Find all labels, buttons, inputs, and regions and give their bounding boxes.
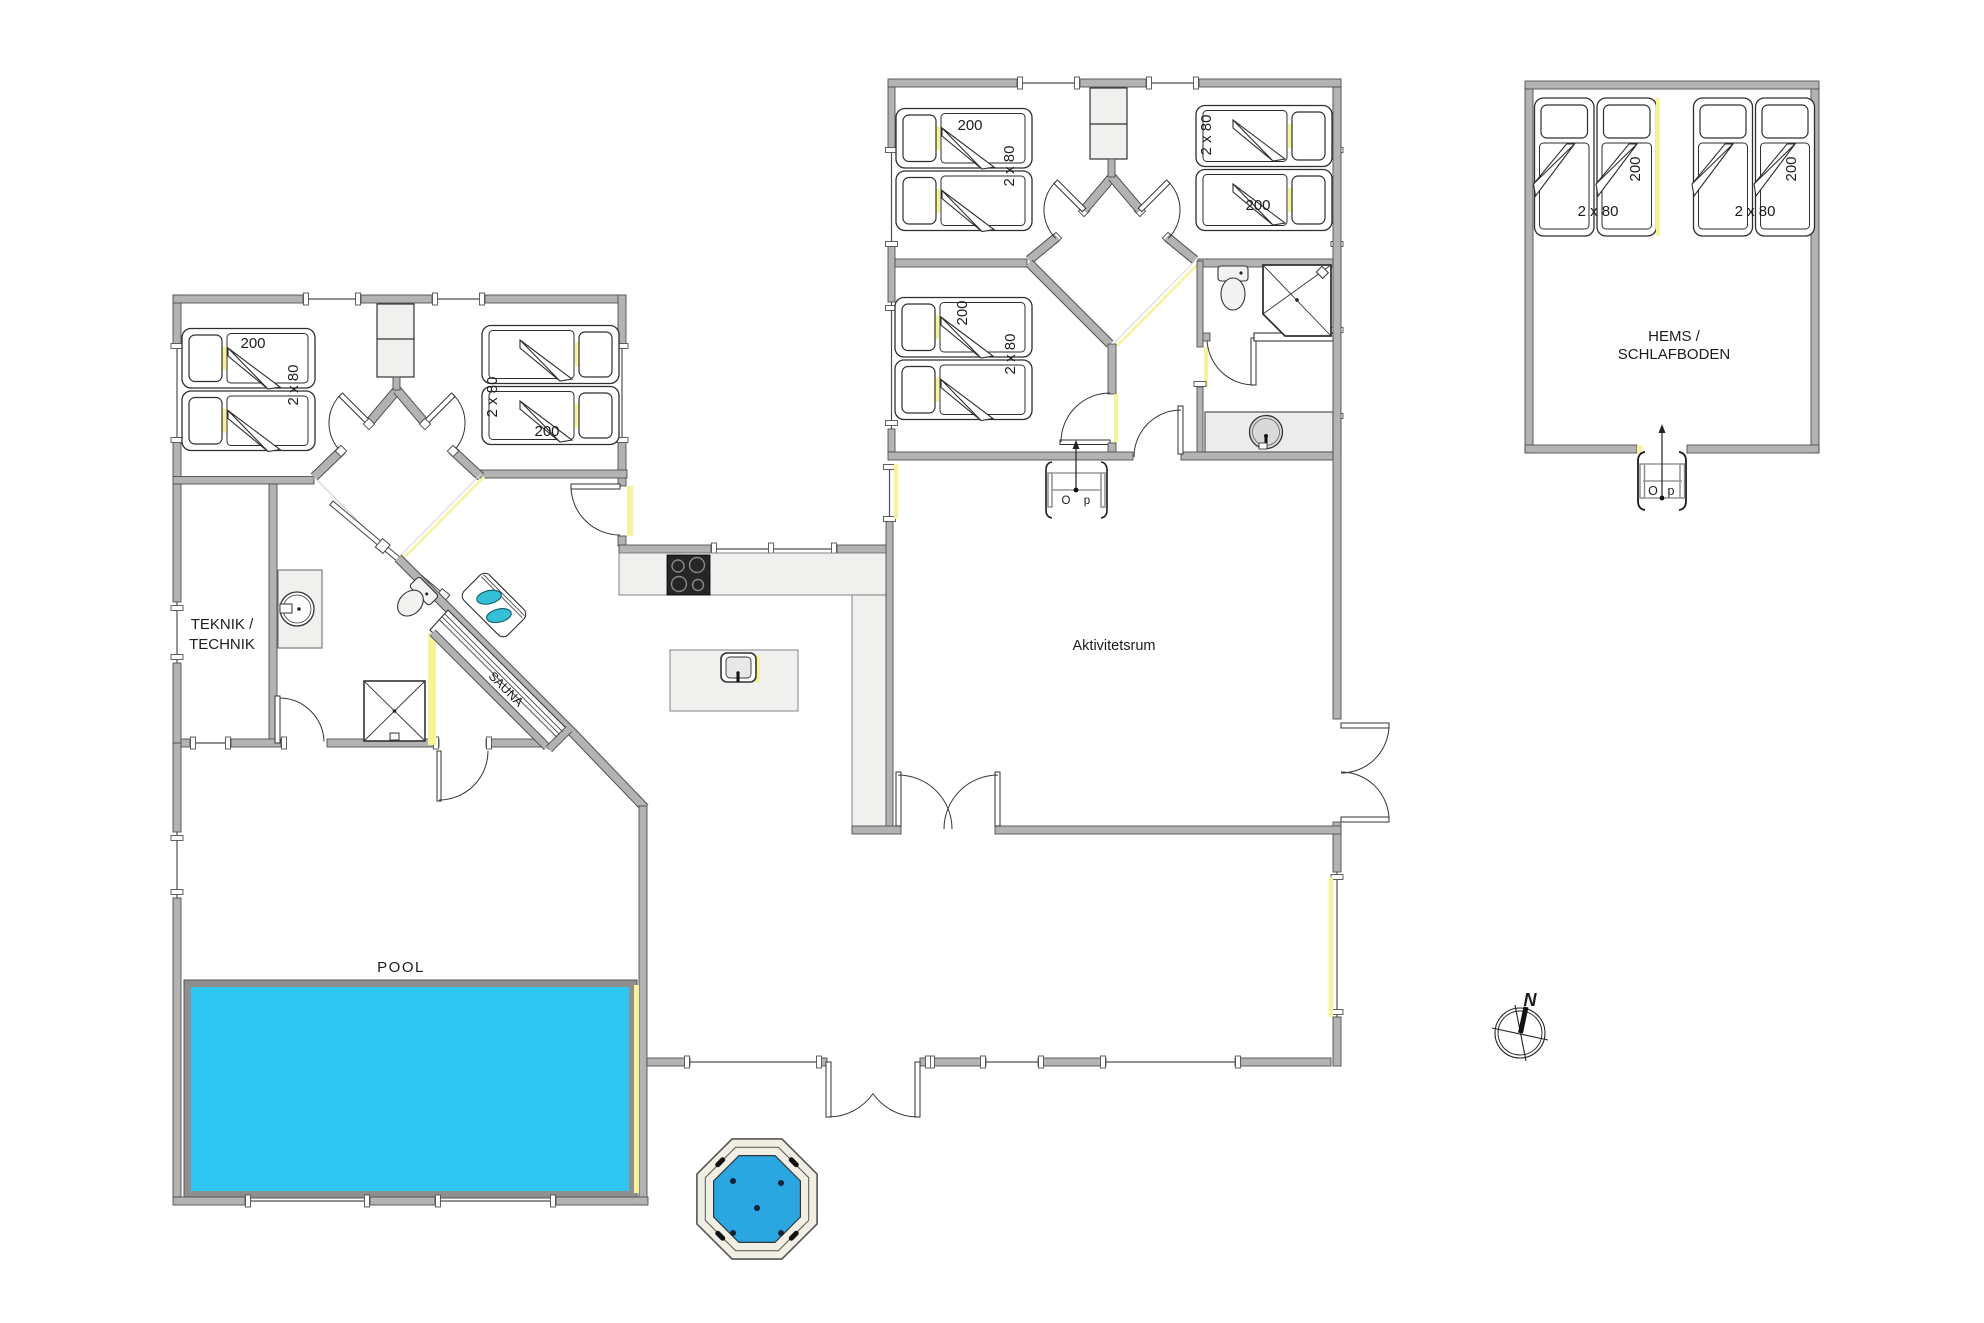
svg-text:O: O: [1062, 495, 1071, 507]
svg-text:Aktivitetsrum: Aktivitetsrum: [1073, 638, 1156, 654]
svg-text:TEKNIK /: TEKNIK /: [191, 616, 254, 633]
svg-text:2 x 80: 2 x 80: [1002, 334, 1019, 375]
svg-text:200: 200: [957, 117, 982, 134]
svg-text:p: p: [1668, 484, 1675, 498]
svg-text:HEMS /: HEMS /: [1648, 328, 1701, 345]
svg-text:p: p: [1084, 495, 1090, 507]
svg-text:O: O: [1648, 484, 1658, 498]
svg-text:2 x 80: 2 x 80: [1735, 203, 1776, 220]
svg-text:200: 200: [534, 423, 559, 440]
svg-text:200: 200: [1783, 156, 1800, 181]
svg-text:2 x 80: 2 x 80: [1578, 203, 1619, 220]
svg-text:200: 200: [954, 300, 971, 325]
svg-text:POOL: POOL: [377, 959, 425, 976]
svg-text:200: 200: [1245, 197, 1270, 214]
svg-text:2 x 80: 2 x 80: [1198, 115, 1215, 156]
svg-text:2 x 80: 2 x 80: [285, 365, 302, 406]
svg-text:TECHNIK: TECHNIK: [189, 636, 255, 653]
svg-text:200: 200: [1627, 156, 1644, 181]
svg-text:N: N: [1524, 990, 1538, 1010]
svg-text:2 x 80: 2 x 80: [1001, 146, 1018, 187]
svg-text:200: 200: [240, 335, 265, 352]
svg-text:2 x 80: 2 x 80: [484, 377, 501, 418]
svg-text:SCHLAFBODEN: SCHLAFBODEN: [1618, 346, 1731, 363]
